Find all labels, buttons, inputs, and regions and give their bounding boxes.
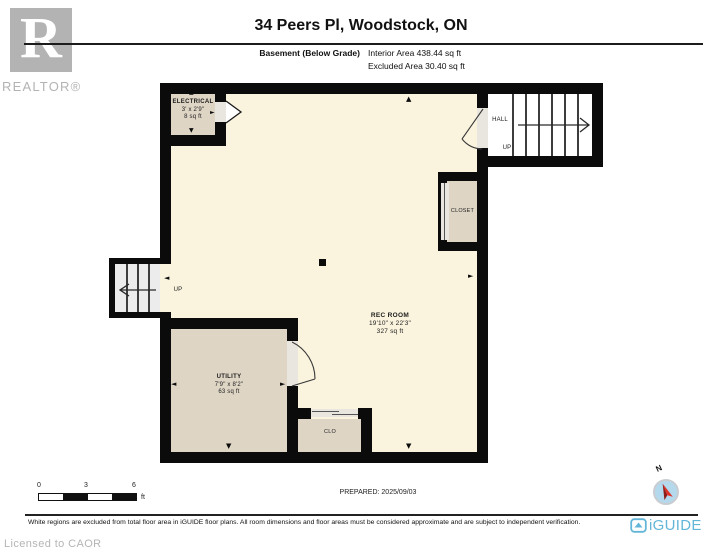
utility-room-label: UTILITY 7'9" x 8'2" 63 sq ft <box>199 374 259 397</box>
floorplan: ELECTRICAL 3' x 2'9" 8 sq ft HALL UP CLO… <box>0 0 720 557</box>
dim-arrow-left: ◄ <box>171 381 176 388</box>
left-stairs-up-label: UP <box>170 287 186 295</box>
scale-unit: ft <box>141 494 145 502</box>
dim-arrow-right: ► <box>210 109 215 116</box>
closet-label: CLOSET <box>448 208 477 216</box>
footer-divider <box>25 514 698 516</box>
clo-label: CLO <box>315 429 345 437</box>
scale-tick-3: 3 <box>81 482 91 490</box>
dim-arrow-down: ▼ <box>189 127 194 134</box>
compass-needle <box>658 482 672 500</box>
dim-arrow-right: ► <box>280 381 285 388</box>
stairs-up-arrow-right <box>518 118 589 132</box>
realtor-logo-letter: R <box>10 4 72 71</box>
scale-segment <box>88 494 112 500</box>
iguide-logo-icon <box>630 518 647 533</box>
hall-up-label: UP <box>498 145 516 153</box>
hall-label: HALL <box>489 117 511 125</box>
scale-tick-0: 0 <box>34 482 44 490</box>
prepared-date: PREPARED: 2025/09/03 <box>278 489 478 497</box>
scale-segment <box>63 494 87 500</box>
scale-segment <box>39 494 63 500</box>
dim-arrow-down: ▼ <box>406 443 411 450</box>
iguide-wordmark: iGUIDE <box>649 517 702 534</box>
title-divider <box>24 43 703 45</box>
iguide-logo: iGUIDE <box>630 517 702 534</box>
dim-arrow-up: ▲ <box>406 96 411 103</box>
hall-door-swing <box>462 109 483 149</box>
utility-door-swing <box>292 342 315 386</box>
scale-bar <box>38 493 137 501</box>
dim-arrow-right: ► <box>468 273 473 280</box>
dim-arrow-down: ▼ <box>226 443 231 450</box>
rec-room-label: REC ROOM 19'10" x 22'3" 327 sq ft <box>340 312 440 336</box>
scale-tick-6: 6 <box>129 482 139 490</box>
scale-segment <box>112 494 136 500</box>
dim-arrow-up: ▲ <box>189 89 194 96</box>
door-and-stair-symbols <box>0 0 720 557</box>
dim-arrow-up: ▲ <box>226 320 231 327</box>
dim-arrow-left: ◄ <box>166 109 171 116</box>
disclaimer-text: White regions are excluded from total fl… <box>28 519 688 527</box>
realtor-logo-icon: R <box>10 8 72 72</box>
dim-arrow-left: ◄ <box>164 275 169 282</box>
electrical-door-chevron <box>226 101 241 123</box>
floorplan-page: R REALTOR® 34 Peers Pl, Woodstock, ON Ba… <box>0 0 720 557</box>
compass-icon <box>653 479 679 505</box>
license-text: Licensed to CAOR <box>4 538 102 550</box>
stairs-up-arrow-left <box>120 284 156 296</box>
